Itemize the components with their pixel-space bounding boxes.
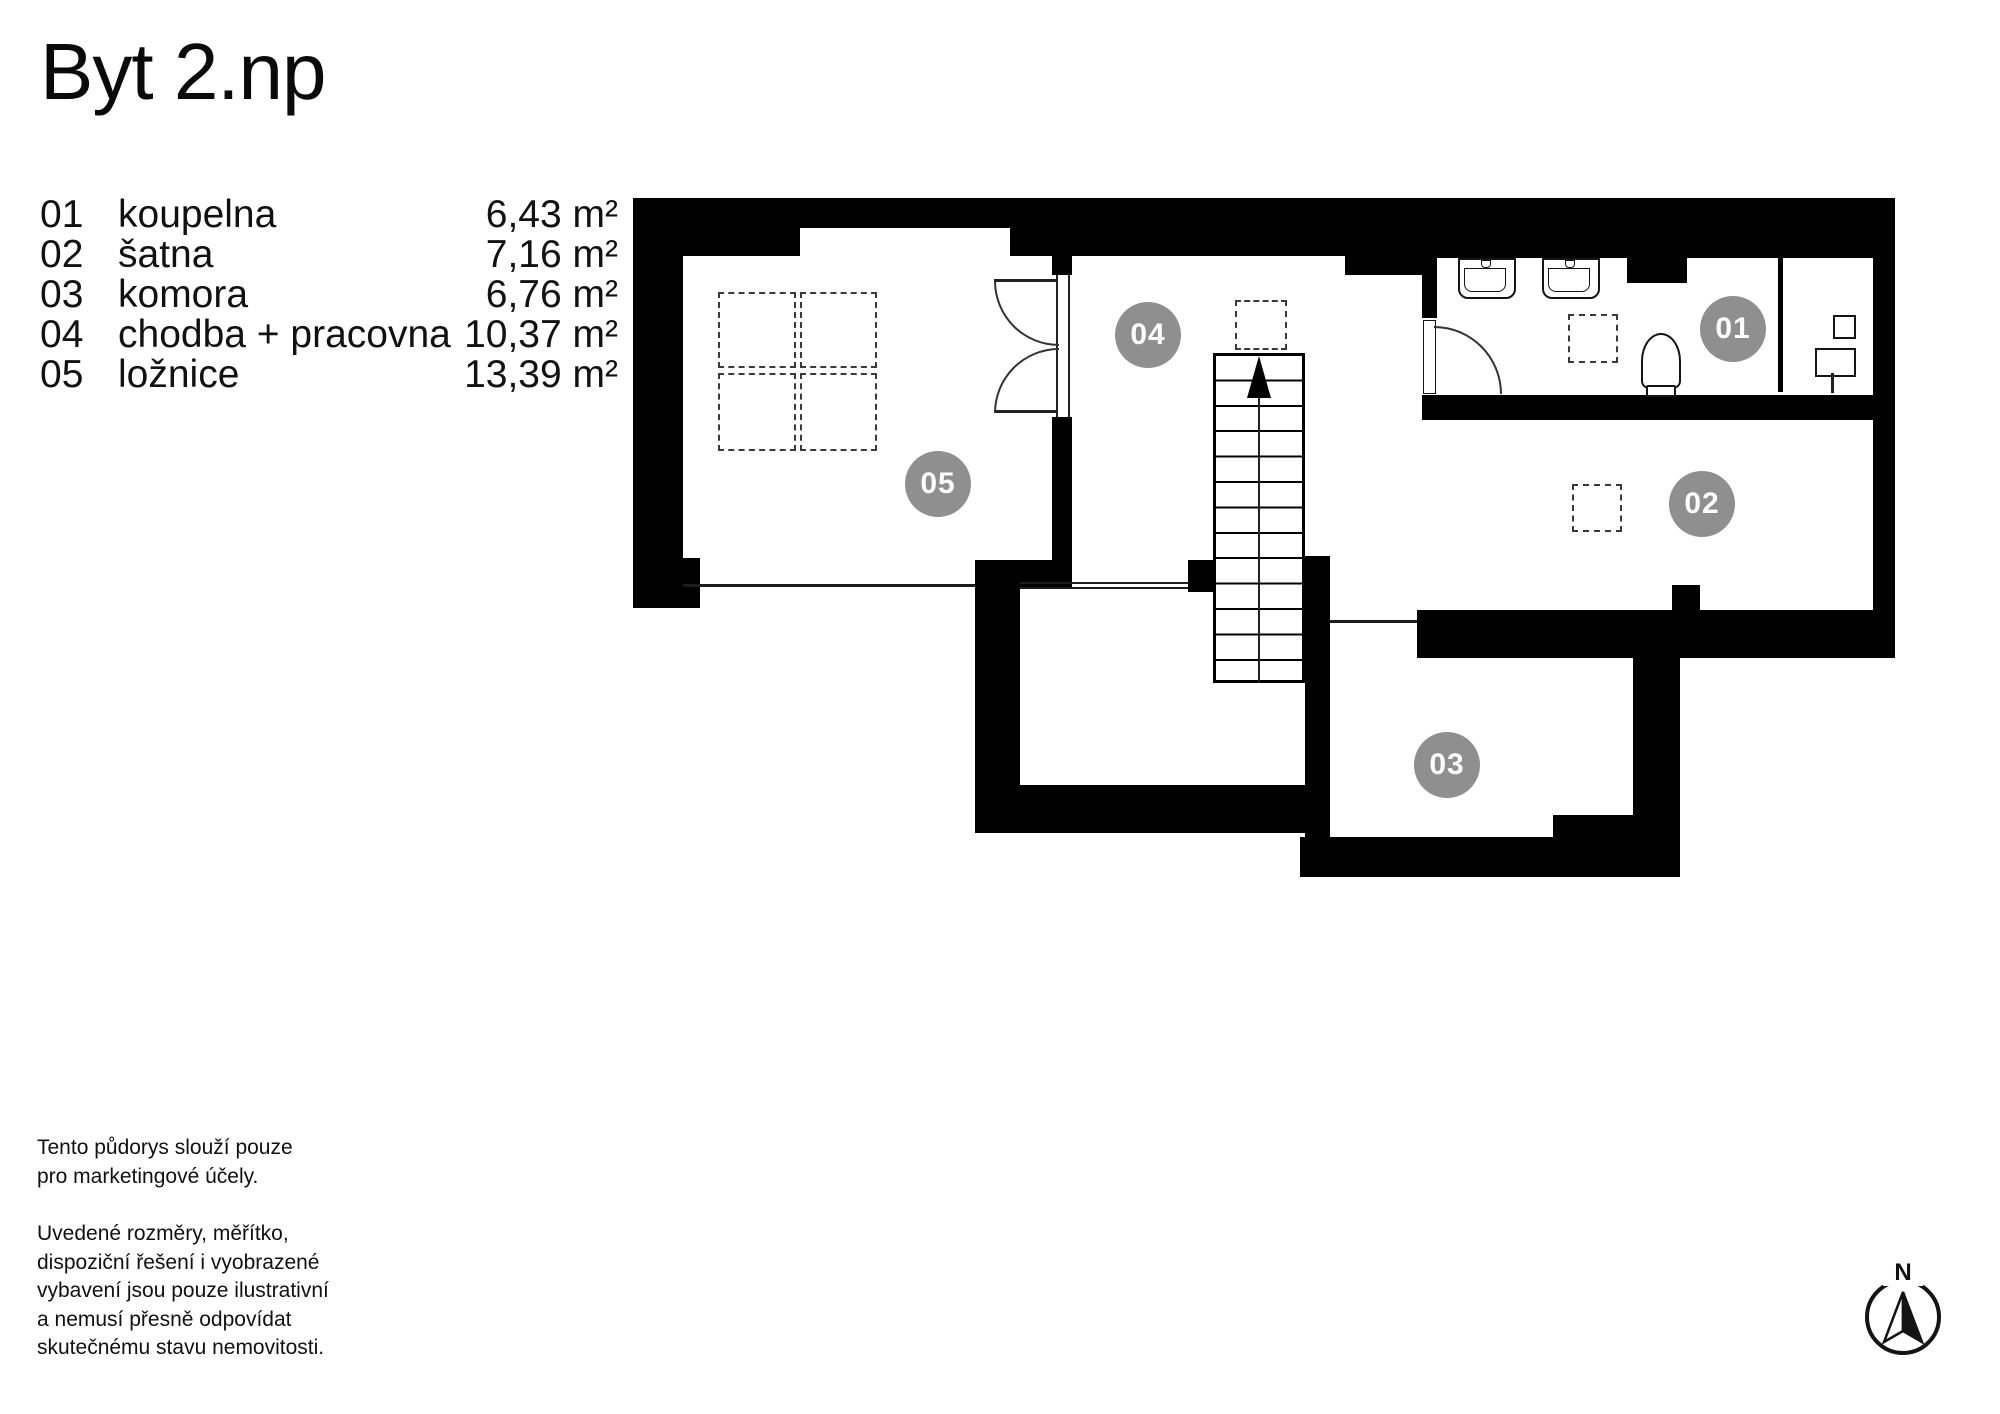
compass-north-label: N bbox=[1883, 1260, 1923, 1286]
wall-segment bbox=[1052, 417, 1072, 565]
north-arrow-icon bbox=[1880, 1288, 1926, 1346]
door-swing-arc bbox=[994, 281, 1059, 346]
room-badge-01: 01 bbox=[1700, 296, 1766, 362]
wall-segment bbox=[1627, 258, 1687, 283]
staircase-center-line bbox=[1258, 395, 1260, 683]
sink-icon bbox=[1542, 258, 1600, 299]
floorplan-page: { "title": "Byt 2.np", "legend": { "rows… bbox=[0, 0, 2000, 1414]
window-line bbox=[683, 584, 975, 587]
wall-segment bbox=[1425, 228, 1895, 258]
wall-segment bbox=[1020, 785, 1305, 833]
wall-segment bbox=[633, 198, 1895, 228]
wall-segment bbox=[1010, 228, 1345, 256]
door-swing-arc bbox=[1434, 326, 1502, 394]
bed-outline bbox=[718, 292, 796, 368]
monitor-icon bbox=[1833, 315, 1856, 339]
wall-segment bbox=[1672, 585, 1700, 610]
wall-segment bbox=[1052, 256, 1072, 275]
wall-segment bbox=[1417, 610, 1895, 658]
floor-plan: 01 02 03 04 05 bbox=[0, 0, 2000, 1414]
door-swing-arc bbox=[994, 348, 1059, 413]
wall-segment bbox=[1873, 198, 1895, 658]
wall-segment bbox=[683, 558, 700, 608]
sink-icon bbox=[1458, 258, 1516, 299]
bed-outline bbox=[800, 373, 877, 451]
room-badge-03: 03 bbox=[1414, 732, 1480, 798]
wall-segment bbox=[975, 588, 1020, 833]
staircase-up-arrow-icon bbox=[1247, 356, 1271, 398]
partition-wall bbox=[1778, 256, 1783, 392]
wall-segment bbox=[1422, 256, 1437, 318]
dashed-fixture-outline bbox=[1568, 314, 1618, 363]
wall-segment bbox=[1633, 658, 1680, 877]
wall-segment bbox=[633, 198, 683, 608]
railing-line bbox=[1020, 587, 1188, 589]
desk-icon bbox=[1815, 348, 1856, 377]
wall-segment bbox=[1305, 556, 1330, 838]
wall-segment bbox=[1300, 837, 1680, 877]
wall-segment bbox=[1188, 560, 1213, 592]
wall-segment bbox=[1553, 815, 1633, 837]
room-badge-05: 05 bbox=[905, 451, 971, 517]
wall-segment bbox=[1422, 395, 1874, 420]
desk-stand bbox=[1831, 373, 1834, 393]
door-frame bbox=[1068, 275, 1070, 417]
sink-tap bbox=[1565, 260, 1575, 268]
wall-segment bbox=[1345, 228, 1425, 275]
toilet-base bbox=[1646, 385, 1676, 397]
bed-outline bbox=[718, 373, 796, 451]
sink-tap bbox=[1481, 260, 1491, 268]
dashed-fixture-outline bbox=[1572, 484, 1622, 532]
toilet-icon bbox=[1641, 333, 1681, 389]
bed-outline bbox=[800, 292, 877, 368]
sink-basin bbox=[1464, 268, 1506, 292]
room-badge-04: 04 bbox=[1115, 302, 1181, 368]
railing-line bbox=[1020, 582, 1188, 584]
room-badge-02: 02 bbox=[1669, 471, 1735, 537]
compass: N bbox=[1855, 1255, 1955, 1365]
dashed-fixture-outline bbox=[1235, 300, 1287, 350]
sink-basin bbox=[1548, 268, 1590, 292]
railing-line bbox=[1330, 620, 1417, 623]
